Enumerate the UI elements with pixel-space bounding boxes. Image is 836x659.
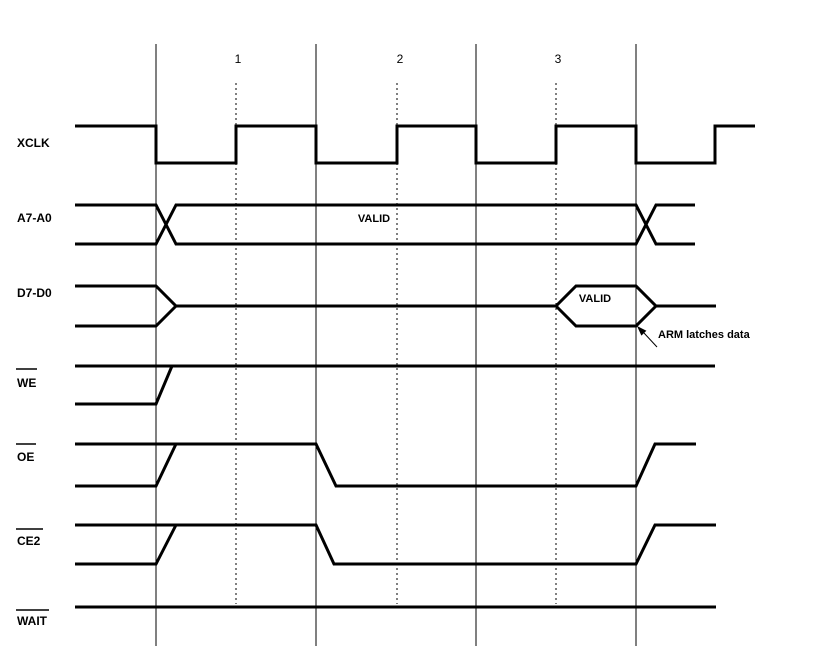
addr-valid-text: VALID bbox=[358, 213, 390, 225]
cycle-number: 2 bbox=[397, 52, 404, 66]
xclk-label: XCLK bbox=[17, 136, 50, 150]
data-label: D7-D0 bbox=[17, 286, 52, 300]
data-waveform bbox=[75, 306, 176, 326]
ce2-label: CE2 bbox=[17, 534, 41, 548]
cycle-number: 3 bbox=[555, 52, 562, 66]
data-waveform bbox=[75, 286, 716, 306]
we-label: WE bbox=[17, 376, 36, 390]
cycle-number: 1 bbox=[235, 52, 242, 66]
timing-diagram-page: 123XCLKA7-A0D7-D0WEOECE2WAITVALIDVALIDAR… bbox=[0, 0, 836, 659]
ce2-waveform bbox=[75, 525, 716, 564]
xclk-waveform bbox=[75, 126, 755, 163]
data-waveform bbox=[556, 306, 656, 326]
addr-label: A7-A0 bbox=[17, 211, 52, 225]
oe-waveform bbox=[75, 444, 696, 486]
ce2-waveform bbox=[75, 525, 176, 564]
oe-label: OE bbox=[17, 450, 34, 464]
annotation-arrow-line bbox=[644, 333, 657, 347]
we-waveform bbox=[75, 366, 172, 404]
timing-diagram-svg: 123XCLKA7-A0D7-D0WEOECE2WAITVALIDVALIDAR… bbox=[0, 0, 836, 659]
oe-waveform bbox=[75, 444, 176, 486]
arm-latches-data-text: ARM latches data bbox=[658, 329, 751, 341]
wait-label: WAIT bbox=[17, 614, 48, 628]
data-valid-text: VALID bbox=[579, 293, 611, 305]
